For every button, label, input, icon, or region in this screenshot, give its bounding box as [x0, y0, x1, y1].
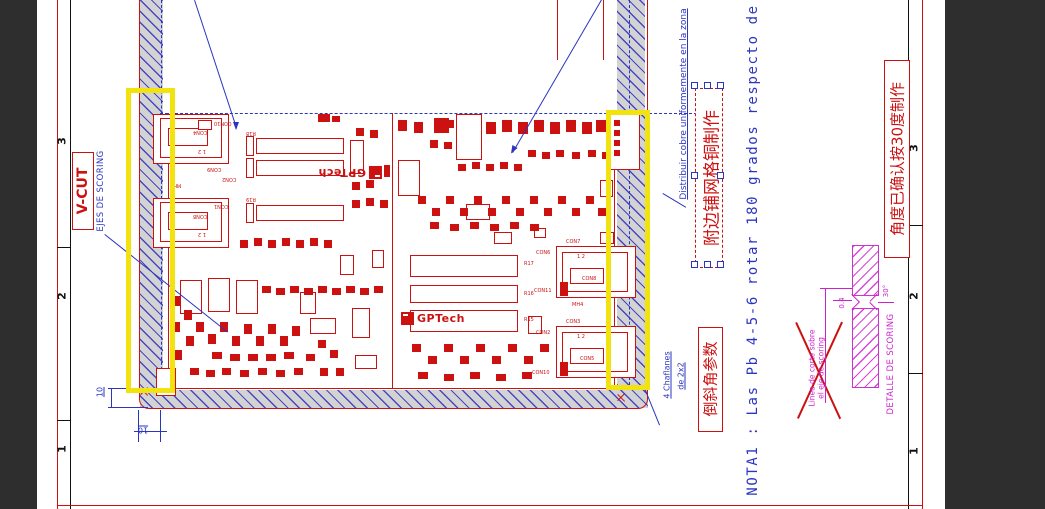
pcb-component-pad	[502, 120, 512, 132]
pcb-component-outline	[372, 250, 384, 268]
pcb-component-pad	[516, 208, 524, 216]
chamfer-note-line1: 4 Chaflanes	[663, 351, 672, 398]
frame-red-bottom	[57, 505, 923, 506]
pcb-component-pad	[598, 208, 606, 216]
pcb-component-pad	[556, 150, 564, 157]
vcut-highlight-right[interactable]	[606, 110, 650, 390]
pcb-component-pad	[450, 224, 459, 231]
pcb-component-pad	[444, 374, 454, 381]
distribuir-note: Distribuir cobre uniformemente en la zon…	[679, 8, 689, 199]
pcb-component-outline	[246, 158, 254, 178]
pcb-component-outline	[355, 355, 377, 369]
pcb-component-pad	[330, 350, 338, 358]
pcb-component-pad	[458, 164, 466, 171]
pcb-component-pad	[346, 286, 355, 293]
pcb-component-pad	[268, 240, 276, 248]
pcb-component-pad	[566, 120, 576, 132]
pcb-component-pad	[500, 162, 508, 169]
pcb-component-pad	[530, 224, 539, 231]
pcb-component-pad	[352, 200, 360, 208]
pcb-component-outline	[410, 255, 518, 277]
pcb-component-pad	[320, 368, 328, 376]
pcb-component-pad	[366, 180, 374, 188]
pcb-component-pad	[262, 286, 271, 293]
pcb-component-pad	[490, 224, 499, 231]
pcb-component-pad	[244, 324, 252, 334]
pcb-component-pad	[446, 120, 454, 128]
pcb-component-pad	[280, 336, 288, 346]
pcb-component-pad	[370, 130, 378, 138]
pcb-ref-designator: R19	[246, 196, 256, 201]
pcb-component-pad	[514, 164, 522, 171]
pcb-component-pad	[446, 196, 454, 204]
pcb-component-pad	[432, 208, 440, 216]
pcb-component-pad	[508, 344, 517, 352]
detail-title: DETALLE DE SCORING	[886, 313, 896, 414]
detail-angle-dim: 30°	[882, 285, 890, 297]
pcb-component-pad	[582, 122, 592, 134]
pcb-component-pad	[254, 238, 262, 246]
gptech-logo-text: GPTech	[318, 166, 366, 179]
pcb-component-pad	[572, 208, 580, 216]
leader-arrowhead	[233, 122, 239, 130]
pcb-component-pad	[324, 240, 332, 248]
pcb-component-pad	[184, 310, 192, 320]
pcb-component-pad	[540, 344, 549, 352]
annotation-line	[108, 407, 148, 408]
pcb-ref-designator: R16	[524, 292, 534, 297]
pcb-component-pad	[470, 372, 480, 379]
pcb-component-outline	[246, 136, 254, 156]
pcb-component-pad	[212, 352, 222, 359]
pcb-component-pad	[560, 282, 568, 296]
pcb-component-pad	[384, 165, 390, 177]
pcb-component-pad	[502, 196, 510, 204]
pcb-ref-designator: CON11	[534, 289, 552, 294]
pcb-component-pad	[266, 354, 276, 361]
pcb-component-pad	[522, 372, 532, 379]
pcb-logo-right: GPTech	[401, 312, 465, 325]
rail-dim-vertical: 10	[96, 387, 105, 397]
selection-handle[interactable]	[704, 261, 711, 268]
pcb-component-outline	[310, 318, 336, 334]
pcb-component-pad	[276, 370, 285, 377]
pcb-ref-designator: CON7	[566, 240, 580, 245]
pcb-component-pad	[412, 344, 421, 352]
pcb-component-outline	[246, 203, 254, 223]
selection-handle[interactable]	[717, 172, 724, 179]
ruler-zone-left-1: 1	[56, 445, 69, 453]
pcb-component-pad	[240, 240, 248, 248]
pcb-ref-designator: R17	[524, 262, 534, 267]
pcb-component-pad	[492, 356, 501, 364]
pcb-component-pad	[572, 152, 580, 159]
gptech-logo-text: GPTech	[417, 312, 465, 325]
pcb-component-pad	[530, 196, 538, 204]
pcb-component-outline	[410, 285, 518, 303]
board-divider	[392, 113, 393, 388]
vcut-label: V-CUT	[75, 168, 91, 215]
pcb-component-pad	[380, 200, 388, 208]
pcb-component-pad	[208, 334, 216, 344]
pcb-component-pad	[586, 196, 594, 204]
frame-black-left	[70, 0, 71, 509]
pcb-component-pad	[588, 150, 596, 157]
pcb-component-pad	[174, 350, 182, 360]
scoring-detail-bar-top	[852, 245, 879, 296]
pcb-component-pad	[430, 140, 438, 148]
annotation-line	[557, 0, 558, 60]
gptech-logo-icon	[401, 312, 414, 325]
pcb-component-pad	[550, 122, 560, 134]
pcb-component-pad	[318, 286, 327, 293]
chamfer-note-line2: de 2x2	[677, 362, 686, 389]
board-edge-bottom	[168, 388, 615, 389]
annotation-line	[160, 410, 161, 442]
pcb-component-pad	[230, 354, 240, 361]
pcb-component-pad	[474, 196, 482, 204]
pcb-component-outline	[256, 138, 344, 154]
pcb-component-pad	[352, 182, 360, 190]
pcb-component-pad	[304, 288, 313, 295]
pcb-ref-designator: R15	[524, 318, 534, 323]
pcb-component-outline	[456, 114, 482, 160]
pcb-component-pad	[366, 198, 374, 206]
pcb-component-pad	[488, 208, 496, 216]
pcb-component-pad	[470, 222, 479, 229]
pcb-ref-designator: CON9	[207, 166, 221, 171]
selection-handle[interactable]	[691, 82, 698, 89]
pcb-component-pad	[558, 196, 566, 204]
selection-handle[interactable]	[704, 82, 711, 89]
pcb-component-pad	[430, 222, 439, 229]
pcb-component-pad	[240, 370, 249, 377]
pcb-component-pad	[444, 344, 453, 352]
pcb-component-pad	[318, 114, 330, 122]
pcb-ref-designator: 1 2	[198, 148, 206, 153]
pcb-component-pad	[222, 368, 231, 375]
pcb-component-outline	[466, 204, 490, 220]
selection-handle[interactable]	[717, 261, 724, 268]
pcb-component-outline	[352, 308, 370, 338]
selection-handle[interactable]	[717, 82, 724, 89]
pcb-component-pad	[460, 356, 469, 364]
frame-tick	[908, 225, 923, 226]
pcb-component-outline	[340, 255, 354, 275]
pcb-ref-designator: 1 2	[577, 335, 585, 340]
pcb-component-pad	[268, 324, 276, 334]
gptech-logo-icon	[369, 166, 382, 179]
pcb-ref-designator: CON5	[580, 357, 594, 362]
pcb-component-pad	[418, 196, 426, 204]
pcb-ref-designator: CON10	[214, 120, 232, 125]
pcb-ref-designator: CON10	[532, 371, 550, 376]
pcb-component-pad	[306, 354, 315, 361]
pcb-component-pad	[356, 128, 364, 136]
frame-red-right	[922, 0, 923, 509]
pcb-ref-designator: CON2	[222, 176, 236, 181]
pcb-component-pad	[290, 286, 299, 293]
pcb-component-outline	[208, 278, 230, 312]
cut-line-note-line1: Linea de corte sobre	[808, 330, 817, 407]
pcb-component-pad	[596, 120, 606, 132]
pcb-component-outline	[398, 160, 420, 196]
pcb-component-pad	[360, 288, 369, 295]
pcb-component-pad	[206, 370, 215, 377]
pcb-logo-left: GPTech	[318, 166, 382, 179]
pcb-ref-designator: CON4	[193, 129, 207, 134]
rail-dim-horizontal: 10	[138, 426, 148, 435]
pcb-ref-designator: CON8	[193, 213, 207, 218]
pcb-component-pad	[428, 356, 437, 364]
ruler-zone-left-2: 2	[56, 292, 69, 300]
ruler-zone-right-1: 1	[908, 447, 921, 455]
pcb-component-pad	[276, 288, 285, 295]
pcb-ref-designator: CON3	[566, 320, 580, 325]
pcb-ref-designator: 1 2	[198, 231, 206, 236]
pcb-component-pad	[332, 288, 341, 295]
frame-tick	[908, 373, 923, 374]
ruler-zone-left-3: 3	[56, 137, 69, 145]
pcb-ref-designator: 1 2	[577, 255, 585, 260]
pcb-ref-designator: CON8	[582, 277, 596, 282]
pcb-component-pad	[524, 356, 533, 364]
pcb-component-pad	[190, 368, 199, 375]
selection-handle[interactable]	[691, 261, 698, 268]
pcb-component-pad	[332, 116, 340, 122]
pcb-component-pad	[510, 222, 519, 229]
cut-line-note-line2: el eje de scoring	[817, 337, 826, 399]
pcb-component-pad	[418, 372, 428, 379]
annotation-line	[603, 0, 604, 60]
pcb-component-pad	[460, 208, 468, 216]
pcb-component-pad	[196, 322, 204, 332]
pcb-component-pad	[534, 120, 544, 132]
angle-confirmed-note: 角度已确认按30度制作	[887, 82, 908, 236]
ejes-scoring-label: EJES DE SCORING	[96, 150, 106, 231]
pcb-component-pad	[496, 374, 506, 381]
pcb-ref-designator: CON2	[536, 331, 550, 336]
selection-handle[interactable]	[691, 172, 698, 179]
annotation-line	[878, 302, 894, 303]
scoring-detail-bar-bottom	[852, 308, 879, 388]
pcb-component-pad	[336, 368, 344, 376]
pcb-component-pad	[292, 326, 300, 336]
pcb-component-pad	[486, 122, 496, 134]
pcb-component-pad	[444, 142, 452, 149]
nota1-text: NOTA1 : Las Pb 4-5-6 rotar 180 grados re…	[745, 4, 761, 495]
pcb-component-pad	[398, 120, 407, 131]
pcb-component-pad	[486, 164, 494, 171]
pcb-component-pad	[232, 336, 240, 346]
pcb-component-pad	[374, 286, 383, 293]
pcb-component-pad	[258, 368, 267, 375]
cad-viewer-canvas[interactable]: 3 2 1 3 2 1 CON7CON6CON8CON11MH4CON3CON2…	[0, 0, 1045, 509]
pcb-component-pad	[544, 208, 552, 216]
pcb-component-pad	[414, 122, 423, 133]
pcb-component-pad	[542, 152, 550, 159]
pcb-component-pad	[284, 352, 294, 359]
bevel-params-note: 倒斜角参数	[700, 341, 721, 416]
pcb-component-pad	[472, 162, 480, 169]
pcb-component-outline	[236, 280, 258, 314]
frame-tick	[57, 420, 71, 421]
annotation-line	[111, 388, 112, 407]
pcb-component-pad	[528, 150, 536, 157]
pcb-ref-designator: CON1	[214, 203, 228, 208]
pcb-component-pad	[310, 238, 318, 246]
pcb-component-pad	[186, 336, 194, 346]
pcb-ref-designator: CON6	[536, 251, 550, 256]
frame-red-left	[57, 0, 58, 509]
vcut-highlight-left[interactable]	[126, 88, 175, 393]
pcb-ref-designator: MH4	[572, 303, 583, 308]
pcb-component-pad	[560, 362, 568, 376]
pcb-component-outline	[300, 292, 316, 314]
pcb-component-pad	[318, 340, 326, 348]
pcb-ref-designator: R18	[246, 130, 256, 135]
pcb-component-outline	[494, 232, 512, 244]
ruler-zone-right-2: 2	[908, 292, 921, 300]
pcb-component-pad	[296, 240, 304, 248]
pcb-component-pad	[256, 336, 264, 346]
pcb-component-pad	[248, 354, 258, 361]
pcb-component-pad	[294, 368, 303, 375]
frame-tick	[57, 247, 71, 248]
pcb-component-outline	[256, 205, 344, 221]
pcb-component-pad	[476, 344, 485, 352]
pcb-component-pad	[282, 238, 290, 246]
detail-depth-dim: 0.4	[838, 297, 846, 308]
